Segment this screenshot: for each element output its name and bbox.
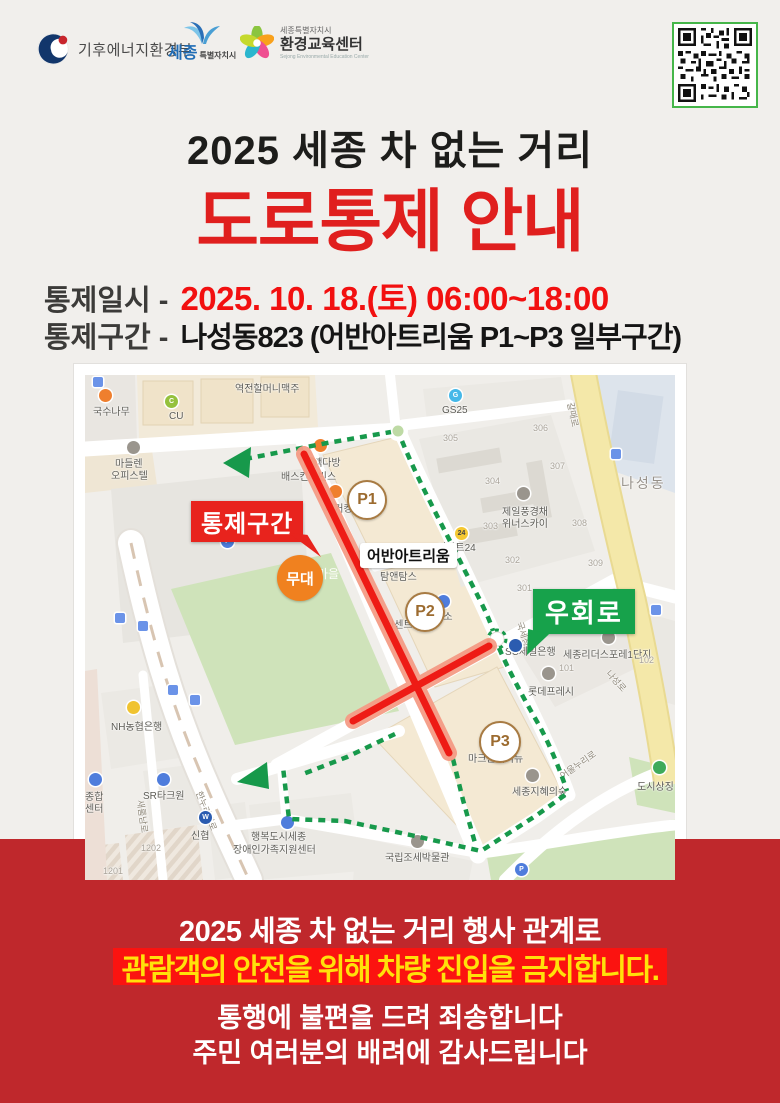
map-label: 오피스텔 <box>111 467 148 482</box>
map-label: 307 <box>550 461 565 471</box>
map-poi-icon <box>127 701 140 714</box>
poster: 기후에너지환경부 세종 특별자치시 세종특별자치시 환경교육센터 <box>0 0 780 1103</box>
map-poi-icon <box>304 457 317 470</box>
map-label: 역전할머니맥주 <box>235 380 299 395</box>
parking-marker-p2: P2 <box>405 592 445 632</box>
map-card: 국수나무CU역전할머니맥주마들렌오피스텔GS253053063043073033… <box>73 363 687 892</box>
road-control-map: 국수나무CU역전할머니맥주마들렌오피스텔GS253053063043073033… <box>85 375 675 880</box>
map-label: SR타크원 <box>143 787 185 802</box>
map-poi-icon <box>651 605 661 615</box>
urban-atrium-label: 어반아트리움 <box>360 543 457 568</box>
map-poi-icon <box>314 439 327 452</box>
map-label: 세종지혜의숲 <box>512 783 567 798</box>
map-poi-icon <box>526 769 539 782</box>
map-poi-icon <box>115 613 125 623</box>
taegeuk-icon <box>36 32 70 66</box>
map-label: 국립조세박물관 <box>385 849 449 864</box>
map-poi-icon <box>611 449 621 459</box>
map-poi-icon: G <box>449 389 462 402</box>
map-poi-icon <box>542 667 555 680</box>
map-poi-icon <box>517 487 530 500</box>
map-label: 102 <box>639 655 654 665</box>
map-poi-icon <box>127 441 140 454</box>
map-poi-icon <box>509 639 522 652</box>
map-label: 309 <box>588 558 603 568</box>
map-label: 308 <box>572 518 587 528</box>
map-label: 위너스카이 <box>502 515 548 530</box>
stage-badge: 무대 <box>277 555 323 601</box>
parking-marker-p1: P1 <box>347 480 387 520</box>
map-label: 새롬남로 <box>134 799 151 834</box>
map-label: 갈매로 <box>564 401 582 428</box>
qr-pattern <box>678 28 752 102</box>
control-section-label: 통제구간 - <box>44 314 168 356</box>
control-datetime-label: 통제일시 - <box>44 277 168 319</box>
map-label: 빽다방 <box>313 454 341 469</box>
map-poi-icon: P <box>515 863 528 876</box>
footer-line4: 주민 여러분의 배려에 감사드립니다 <box>0 1031 780 1070</box>
map-poi-icon <box>138 621 148 631</box>
control-section-value: 나성동823 (어반아트리움 P1~P3 일부구간) <box>180 314 681 356</box>
map-poi-icon <box>99 389 112 402</box>
map-label: 303 <box>483 521 498 531</box>
map-label: 305 <box>443 433 458 443</box>
map-poi-icon <box>653 761 666 774</box>
map-label: 306 <box>533 423 548 433</box>
map-label: 배스킨라빈스 <box>281 468 336 483</box>
map-label: 나성로 <box>603 667 629 694</box>
map-label: GS25 <box>442 405 468 416</box>
map-poi-icon <box>190 695 200 705</box>
map-poi-icon <box>168 685 178 695</box>
map-poi-icon <box>89 773 102 786</box>
map-label: CU <box>169 411 183 422</box>
map-label: 나성동 <box>621 473 666 493</box>
eco-center-logo: 세종특별자치시 환경교육센터 Sejong Environmental Educ… <box>240 26 369 61</box>
map-poi-icon: W <box>199 811 212 824</box>
eco-center-eng: Sejong Environmental Education Center <box>280 54 369 61</box>
map-poi-icon <box>281 816 294 829</box>
map-poi-icon <box>93 377 103 387</box>
map-label: 국수나무 <box>93 403 130 418</box>
sejong-city-logo: 세종 특별자치시 <box>168 22 236 62</box>
map-label: 302 <box>505 555 520 565</box>
qr-code <box>672 22 758 108</box>
map-label: 101 <box>559 663 574 673</box>
map-label: 장애인가족지원센터 <box>233 841 316 856</box>
map-label: 어울누리로 <box>557 747 598 781</box>
footer-line3: 통행에 불편을 드려 죄송합니다 <box>0 996 780 1035</box>
sejong-city-sub: 특별자치시 <box>199 50 236 61</box>
map-poi-icon <box>329 485 342 498</box>
control-datetime-row: 통제일시 - 2025. 10. 18.(토) 06:00~18:00 <box>44 272 609 320</box>
eco-center-main: 환경교육센터 <box>280 36 369 54</box>
parking-marker-p3: P3 <box>479 721 521 763</box>
map-label: 1201 <box>103 866 123 876</box>
control-datetime-value: 2025. 10. 18.(토) 06:00~18:00 <box>180 272 608 320</box>
map-label: 1202 <box>141 843 161 853</box>
sejong-bird-icon <box>180 22 224 46</box>
map-label: 301 <box>517 583 532 593</box>
map-poi-icon <box>411 835 424 848</box>
map-label: 센터 <box>85 800 103 815</box>
map-poi-icon <box>157 773 170 786</box>
eco-center-top: 세종특별자치시 <box>280 26 369 36</box>
footer-highlight-text: 관람객의 안전을 위해 차량 진입을 금지합니다. <box>122 945 659 989</box>
sejong-city-main: 세종 <box>168 46 197 62</box>
map-label: 롯데프레시 <box>528 683 574 698</box>
footer-highlight-band: 관람객의 안전을 위해 차량 진입을 금지합니다. <box>113 948 667 985</box>
map-poi-icon: 24 <box>455 527 468 540</box>
map-label: 304 <box>485 476 500 486</box>
control-section-row: 통제구간 - 나성동823 (어반아트리움 P1~P3 일부구간) <box>44 314 681 356</box>
map-label: 도시상징 <box>637 778 674 793</box>
map-label: NH농협은행 <box>111 718 162 733</box>
map-label: 탐앤탐스 <box>380 568 417 583</box>
pinwheel-icon <box>240 26 274 60</box>
detour-badge: 우회로 <box>533 589 635 634</box>
control-section-badge: 통제구간 <box>191 501 303 542</box>
map-poi-icon: C <box>165 395 178 408</box>
poster-subtitle: 도로통제 안내 <box>0 166 780 265</box>
